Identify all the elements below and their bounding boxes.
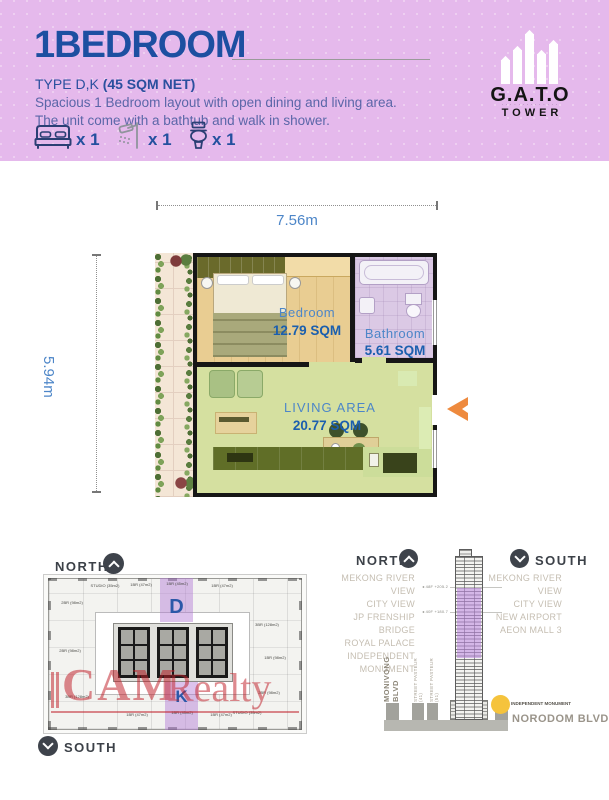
- floorplate-unit-label: STUDIO (35m2): [88, 583, 122, 588]
- living-area: 20.77 SQM: [267, 418, 387, 433]
- watermark-bar: [56, 672, 59, 708]
- unit-plan: BALCONY 7.94 SQM Bedroom 12.79 SQM: [155, 253, 437, 497]
- floorplate-unit-label: 1BR (47m2): [205, 583, 239, 588]
- street-pillar: [386, 703, 399, 720]
- norodom-blvd-label: NORODOM BLVD: [512, 713, 609, 725]
- dim-tick: [436, 201, 438, 210]
- landmark-label: INDEPENDENT MONUMENT: [511, 701, 589, 706]
- ground-bar: [384, 720, 508, 731]
- north-view-item: ROYAL PALACE: [330, 637, 415, 650]
- bedside-lamp: [289, 277, 301, 289]
- watermark-bar: [51, 672, 54, 708]
- bathtub-inner: [364, 265, 424, 280]
- floorplate-unit-label: 2BR (98m2): [55, 600, 89, 605]
- north-view-item: INDEPENDENT: [330, 650, 415, 663]
- toilet-bowl: [406, 304, 421, 318]
- balcony-plants-right: [184, 253, 193, 497]
- entry-door-opening: [432, 395, 438, 425]
- south-arrow-icon: [38, 736, 58, 756]
- dim-line-left: [96, 256, 97, 491]
- floorplate-north-label: NORTH: [55, 559, 109, 574]
- dim-tick: [92, 491, 101, 493]
- level-annotation-text: 40F +180.7: [426, 609, 448, 614]
- closet: [285, 257, 350, 277]
- watermark-cam: CAM: [62, 658, 178, 711]
- window-opening: [432, 430, 438, 468]
- entry-arrow-notch: [462, 403, 471, 415]
- floorplate-south-label: SOUTH: [64, 740, 117, 755]
- north-view-item: JP FRENSHIP BRIDGE: [330, 611, 415, 637]
- dim-height-label: 5.94m: [40, 342, 57, 412]
- tv-console: [215, 412, 257, 434]
- kitchen-sink: [369, 453, 379, 467]
- balcony-plant-cluster: [169, 253, 193, 269]
- level-annotation-text: 48F +205.2: [426, 584, 448, 589]
- floorplate-unit-label: 3BR (128m2): [250, 622, 284, 627]
- watermark-underline: [51, 711, 299, 713]
- armchair: [237, 370, 263, 398]
- sink: [359, 297, 375, 314]
- south-arrow-icon: [510, 549, 529, 568]
- street-pillar: [412, 703, 424, 720]
- window-opening: [432, 300, 438, 345]
- bathroom-door-gap: [362, 357, 386, 364]
- bedroom-area: 12.79 SQM: [249, 323, 365, 338]
- street-label: STREET PASTEUR (51): [429, 656, 439, 702]
- bedroom-name: Bedroom: [249, 305, 365, 320]
- floor-mat: [398, 371, 417, 386]
- armchair: [209, 370, 235, 398]
- floorplate-unit-label: 1BR (47m2): [124, 582, 158, 587]
- highlighted-floors: [457, 588, 481, 658]
- independent-monument-icon: [491, 695, 510, 714]
- north-arrow-icon: [103, 553, 124, 574]
- floor-mat: [419, 407, 431, 449]
- cam-realty-watermark: CAM Realty: [45, 658, 307, 714]
- floorplate-section: NORTH D K STUDIO (35m2) 1BR (47m2) 1BR (…: [25, 550, 315, 765]
- tower-south-label: SOUTH: [535, 553, 588, 568]
- unit-outline: Bedroom 12.79 SQM Bathroom 5.61 SQM: [193, 253, 437, 497]
- dim-line-top: [158, 205, 436, 206]
- bathroom-name: Bathroom: [357, 326, 433, 341]
- street-label: MONIVONG BLVD: [382, 644, 400, 702]
- flyer-page: 1BEDROOM TYPE D,K (45 SQM NET) Spacious …: [0, 0, 609, 800]
- floorplate-unit-label: 2BR (98m2): [53, 648, 87, 653]
- floorplate-unit-label: 1BR (45m2): [160, 581, 194, 586]
- tv: [219, 417, 249, 422]
- bathroom-area: 5.61 SQM: [357, 343, 433, 358]
- street-label: STREET PASTEUR (41): [413, 656, 423, 702]
- living-name: LIVING AREA: [270, 400, 390, 415]
- bedside-lamp: [201, 277, 213, 289]
- pillow: [252, 275, 284, 285]
- tower-elevation: [455, 556, 483, 720]
- watermark-realty: Realty: [167, 664, 271, 711]
- level-annotation: ◂ 40F +180.7: [392, 609, 448, 614]
- unit-d-letter: D: [160, 596, 193, 619]
- pillow: [217, 275, 249, 285]
- balcony-plants-left: [155, 253, 164, 497]
- level-annotation: ◂ 48F +205.2: [392, 584, 448, 589]
- dim-width-label: 7.56m: [227, 212, 367, 229]
- stove: [227, 453, 253, 462]
- kitchen-appliance: [383, 453, 417, 473]
- north-view-item: MONUMENT: [330, 663, 415, 676]
- interior-wall: [197, 362, 309, 367]
- street-pillar: [427, 703, 438, 720]
- north-arrow-icon: [399, 549, 418, 568]
- tower-section: NORTH MEKONG RIVER VIEW CITY VIEW JP FRE…: [330, 540, 609, 760]
